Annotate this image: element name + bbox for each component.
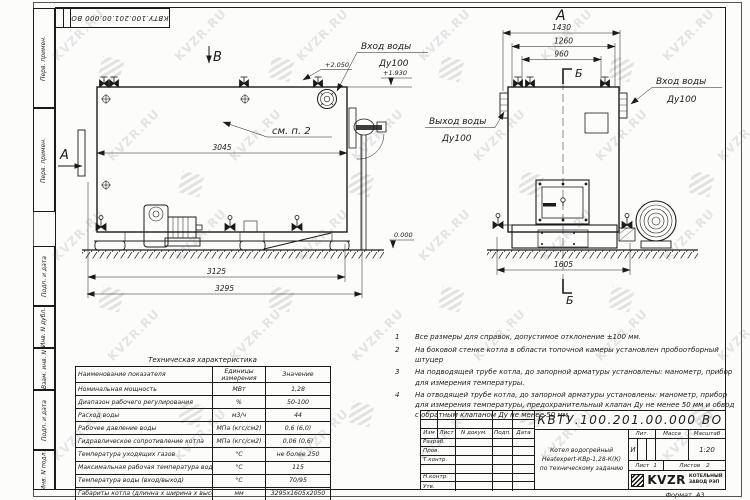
tech-row: Номинальная мощностьМВт1,28	[76, 383, 331, 396]
format-label: Формат А3	[640, 491, 730, 499]
side-view: 3045 3125 3295 В А см. п. 2 Вход воды Ду…	[58, 42, 428, 298]
valve-icon	[526, 77, 535, 87]
valve-icon	[601, 77, 610, 87]
tech-row: Рабочее давление водыМПа (кгс/см2)0,6 (6…	[76, 422, 331, 435]
valve-icon	[225, 216, 235, 231]
outlet-flange-front	[500, 93, 508, 118]
stud-icon	[101, 180, 111, 190]
drawing-sheet: КВТУ.100.201.00.000 ВО Перв. примен. Пер…	[0, 0, 750, 500]
elev-0000: 0.000	[394, 231, 413, 239]
kvzr-logo-text: KVZR	[647, 473, 686, 487]
scale-value: 1:20	[689, 439, 725, 461]
dim-1260: 1260	[554, 37, 573, 46]
kvzr-logo-icon	[631, 474, 644, 487]
inlet-front-label-line2: Ду100	[666, 95, 697, 105]
tech-row: Габариты котла (длинна х ширина х высота…	[76, 487, 331, 500]
tech-table-header: Наименование показателя Единицыизмерения…	[76, 367, 331, 383]
stud-icon	[101, 94, 111, 104]
section-b-top-label: Б	[575, 67, 583, 80]
valve-icon	[622, 214, 632, 229]
note-item: 1Все размеры для справок, допустимое отк…	[395, 332, 735, 342]
note-ref-label: см. п. 2	[272, 126, 311, 137]
dim-3125: 3125	[207, 267, 226, 276]
outlet-label-line1: Выход воды	[429, 117, 486, 127]
dim-3295: 3295	[215, 284, 234, 293]
title-block-header-row: Изм Лист N докум. Подп. Дата	[421, 429, 534, 439]
note-item: 3На подводящей трубе котла, до запорной …	[395, 367, 735, 387]
title-block-signatures: Изм Лист N докум. Подп. Дата Разраб. Про…	[421, 411, 535, 489]
note-item: 2На боковой стенке котла в области топоч…	[395, 345, 735, 365]
inlet-front-label-line1: Вход воды	[656, 77, 706, 87]
valve-icon	[292, 216, 302, 231]
front-view-dimensions	[497, 30, 630, 275]
company-name: КОТЕЛЬНЫЙ ЗАВОД РЭП	[689, 474, 723, 485]
stud-icon	[240, 94, 250, 104]
inlet-flange	[318, 90, 337, 109]
lit-value: И	[629, 439, 638, 461]
tech-row: Максимальная рабочая температура воды°С1…	[76, 461, 331, 474]
tech-table: Наименование показателя Единицыизмерения…	[75, 366, 331, 500]
elev-2050: +2.050	[325, 61, 349, 69]
valve-icon	[493, 214, 503, 229]
dim-960: 960	[554, 50, 569, 59]
outlet-label-line2: Ду100	[441, 134, 472, 144]
tech-row: Расход водым3/ч44	[76, 409, 331, 422]
company-cell: KVZR КОТЕЛЬНЫЙ ЗАВОД РЭП	[629, 471, 725, 489]
view-b-label: В	[213, 50, 222, 65]
valve-icon	[314, 77, 323, 87]
tech-row: Температура уходящих газов°Сне более 250	[76, 448, 331, 461]
elev-1930: +1.930	[383, 69, 407, 77]
section-b-bottom-label: Б	[566, 294, 574, 307]
tech-row: Диапазон рабочего регулирования%50-100	[76, 396, 331, 409]
tech-row: Температура воды (вход/выход)°С70/95	[76, 474, 331, 487]
view-a-label: А	[555, 8, 566, 24]
drawing-title: Котел водогрейный Heatexpert-КВр-1,28-К(…	[535, 430, 629, 489]
inlet-label-line1: Вход воды	[361, 42, 411, 52]
dim-3045: 3045	[212, 143, 231, 152]
valve-icon	[240, 77, 249, 87]
doc-number: КВТУ.100.201.00.000 ВО	[535, 411, 725, 430]
flue-fitting	[349, 108, 386, 250]
dim-1605: 1605	[554, 260, 573, 269]
dim-1430: 1430	[552, 23, 571, 32]
title-block: Изм Лист N докум. Подп. Дата Разраб. Про…	[420, 410, 726, 490]
front-view: 1430 1260 960 1605 А Б Б Выход воды Ду10…	[425, 8, 722, 307]
valve-icon	[514, 77, 523, 87]
tech-table-title: Техническая характеристика	[75, 356, 330, 364]
tech-row: Гидравлическое сопротивление котлаМПа (к…	[76, 435, 331, 448]
inlet-label-line2: Ду100	[378, 59, 409, 69]
furnace-door	[536, 180, 589, 224]
inlet-flange-front	[619, 93, 627, 118]
mass-value	[656, 439, 689, 461]
view-a-arrow-label: А	[59, 148, 69, 163]
valve-icon	[110, 77, 119, 87]
valve-icon	[100, 77, 109, 87]
